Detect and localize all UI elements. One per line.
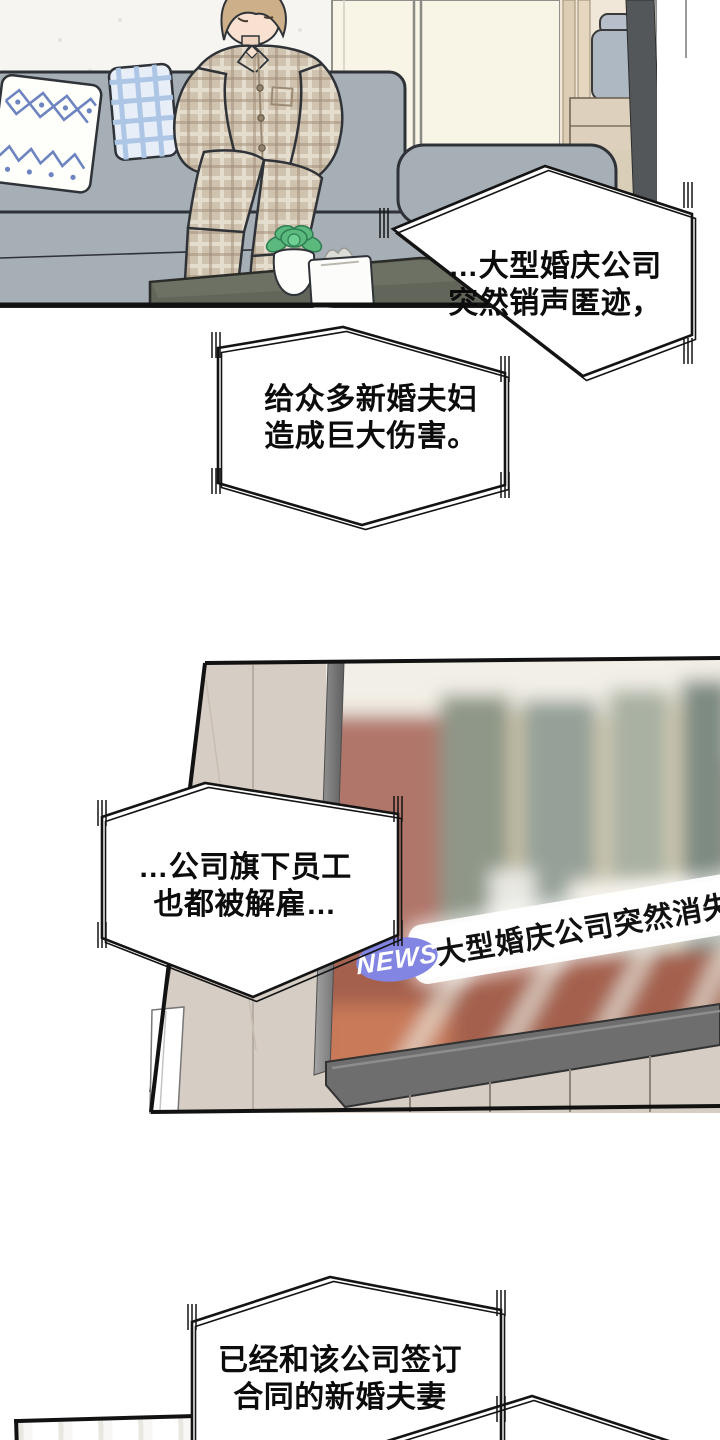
bubble2-line2: 造成巨大伤害。: [226, 418, 516, 455]
bubble3-line1: …公司旗下员工: [100, 849, 390, 886]
couch-armrest: [398, 145, 616, 225]
bubble1-line2: 突然销声匿迹，: [410, 285, 700, 322]
bubble2-line1: 给众多新婚夫妇: [226, 381, 516, 418]
speech-bubble-2-text: 给众多新婚夫妇 造成巨大伤害。: [226, 381, 516, 455]
comic-page: 大型婚庆公司突然消失… NEWS: [0, 0, 720, 1440]
bubble4-line1: 已经和该公司签订: [195, 1342, 485, 1379]
speech-bubble-3-text: …公司旗下员工 也都被解雇…: [100, 849, 390, 923]
panel-corner-peek: [14, 1414, 197, 1440]
speech-bubble-4-text: 已经和该公司签订 合同的新婚夫妻: [195, 1342, 485, 1416]
bubble3-line2: 也都被解雇…: [100, 886, 390, 923]
bubble4-line2: 合同的新婚夫妻: [195, 1379, 485, 1416]
bubble1-line1: …大型婚庆公司: [410, 248, 700, 285]
pillow-geometric: [0, 74, 102, 193]
speech-bubble-1-text: …大型婚庆公司 突然销声匿迹，: [410, 248, 700, 322]
